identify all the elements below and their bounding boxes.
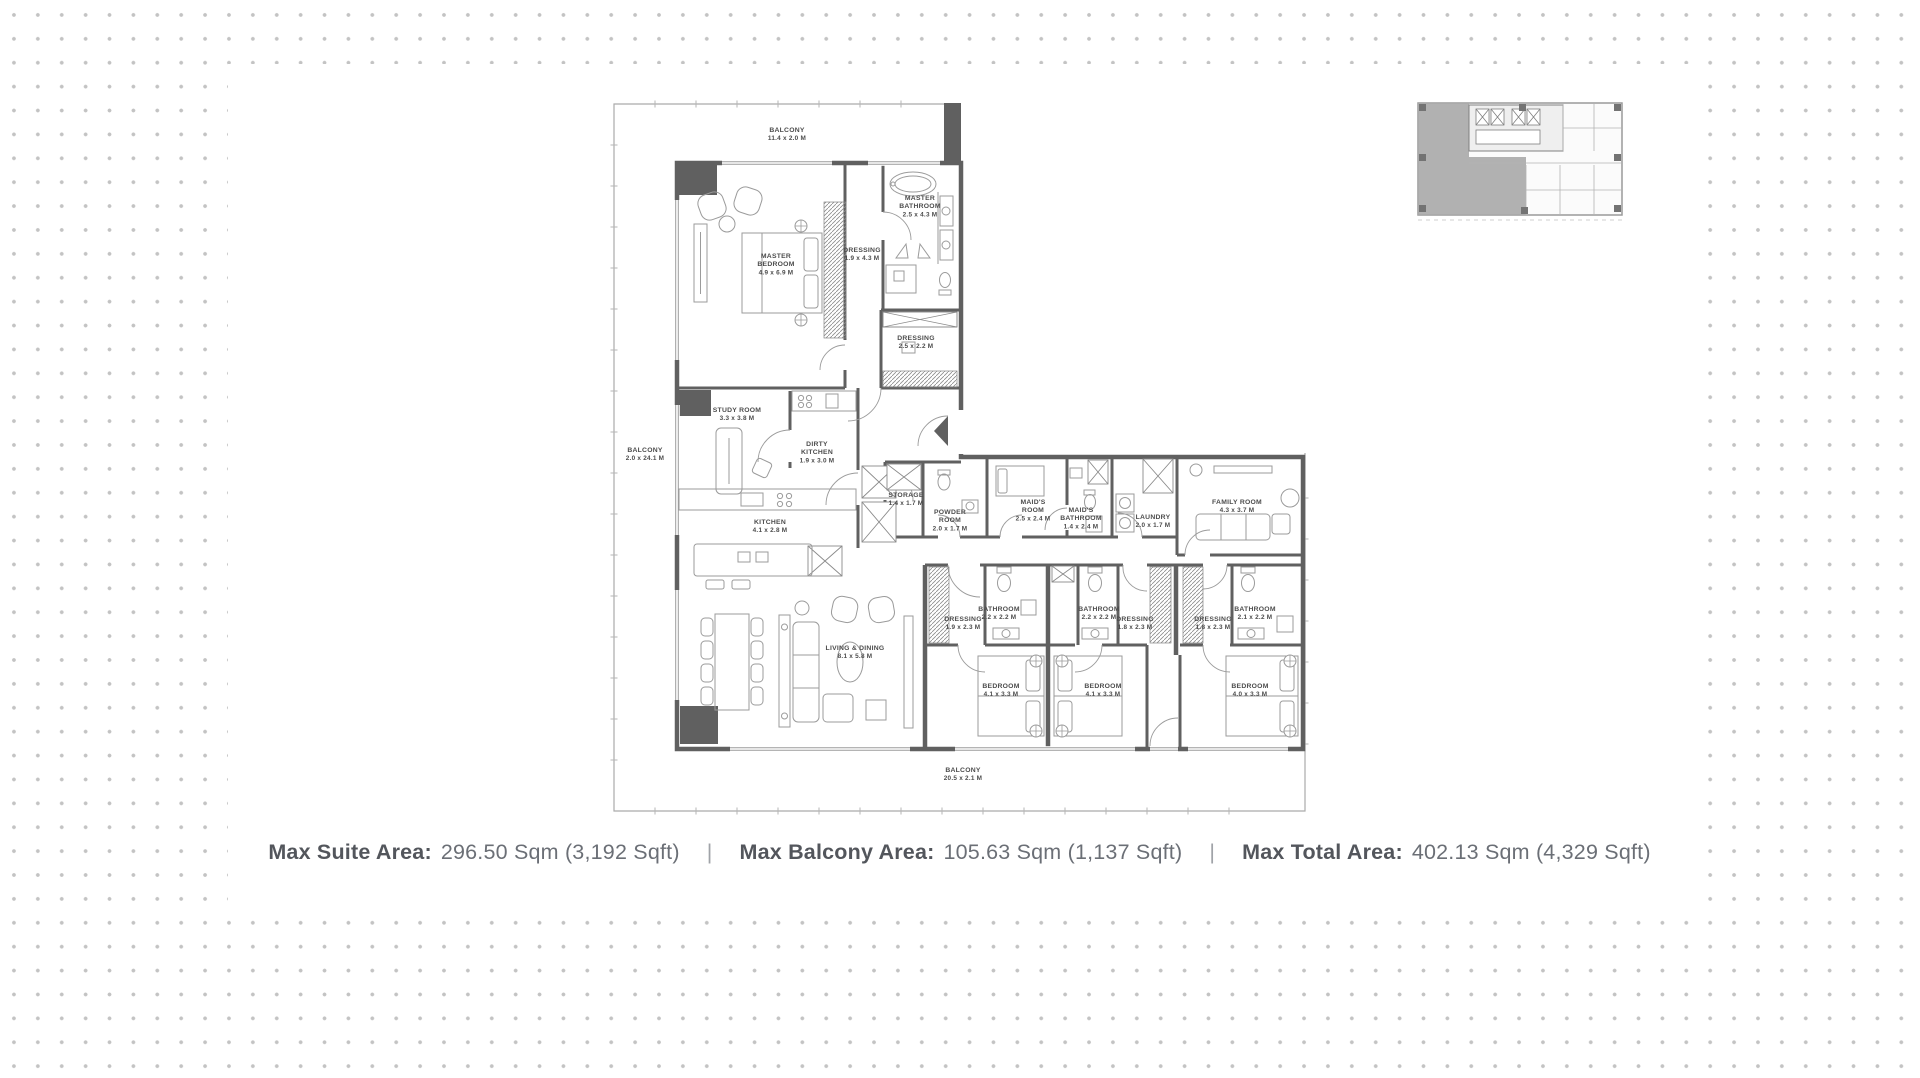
room-label-bedroom-1: BEDROOM4.1 x 3.3 M <box>982 683 1019 698</box>
room-label-dressing-s3: DRESSING1.8 x 2.3 M <box>1194 616 1232 631</box>
room-label-dressing-2: DRESSING2.5 x 2.2 M <box>897 335 935 350</box>
room-label-bathroom-s3: BATHROOM2.1 x 2.2 M <box>1234 606 1276 621</box>
max-balcony-area-value: 105.63 Sqm (1,137 Sqft) <box>943 840 1182 864</box>
room-label-balcony-left: BALCONY2.0 x 24.1 M <box>626 447 665 462</box>
unit-walls <box>674 103 1303 752</box>
separator-1: | <box>707 840 713 864</box>
max-balcony-area-label: Max Balcony Area: <box>739 840 934 864</box>
room-label-dressing-s1: DRESSING1.9 x 2.3 M <box>944 616 982 631</box>
room-label-study-room: STUDY ROOM3.3 x 3.8 M <box>713 407 762 422</box>
room-label-dressing-s2: DRESSING1.8 x 2.3 M <box>1116 616 1154 631</box>
room-label-bedroom-3: BEDROOM4.0 x 3.3 M <box>1231 683 1268 698</box>
room-label-balcony-top: BALCONY11.4 x 2.0 M <box>768 127 806 142</box>
room-label-bedroom-2: BEDROOM4.1 x 3.3 M <box>1084 683 1121 698</box>
room-label-dressing-master: DRESSING1.9 x 4.3 M <box>843 247 881 262</box>
floor-plan-page: BALCONY11.4 x 2.0 MMASTERBEDROOM4.9 x 6.… <box>0 0 1920 1078</box>
room-label-storage: STORAGE1.4 x 1.7 M <box>888 492 923 507</box>
room-label-bathroom-s1: BATHROOM2.2 x 2.2 M <box>978 606 1020 621</box>
room-label-master-bedroom: MASTERBEDROOM4.9 x 6.9 M <box>757 253 794 276</box>
max-total-area-label: Max Total Area: <box>1242 840 1403 864</box>
room-label-laundry: LAUNDRY2.0 x 1.7 M <box>1136 514 1171 529</box>
floor-plan-svg: BALCONY11.4 x 2.0 MMASTERBEDROOM4.9 x 6.… <box>0 0 1920 1078</box>
key-plan-thumbnail <box>1418 103 1622 220</box>
room-label-kitchen: KITCHEN4.1 x 2.8 M <box>753 519 788 534</box>
room-label-master-bathroom: MASTERBATHROOM2.5 x 4.3 M <box>899 195 941 218</box>
room-label-bathroom-s2: BATHROOM2.2 x 2.2 M <box>1078 606 1120 621</box>
room-label-balcony-bottom: BALCONY20.5 x 2.1 M <box>944 767 983 782</box>
separator-2: | <box>1209 840 1215 864</box>
max-suite-area-label: Max Suite Area: <box>268 840 432 864</box>
max-suite-area-value: 296.50 Sqm (3,192 Sqft) <box>441 840 680 864</box>
max-total-area-value: 402.13 Sqm (4,329 Sqft) <box>1412 840 1651 864</box>
area-summary-bar: Max Suite Area:296.50 Sqm (3,192 Sqft)|M… <box>228 840 1691 865</box>
